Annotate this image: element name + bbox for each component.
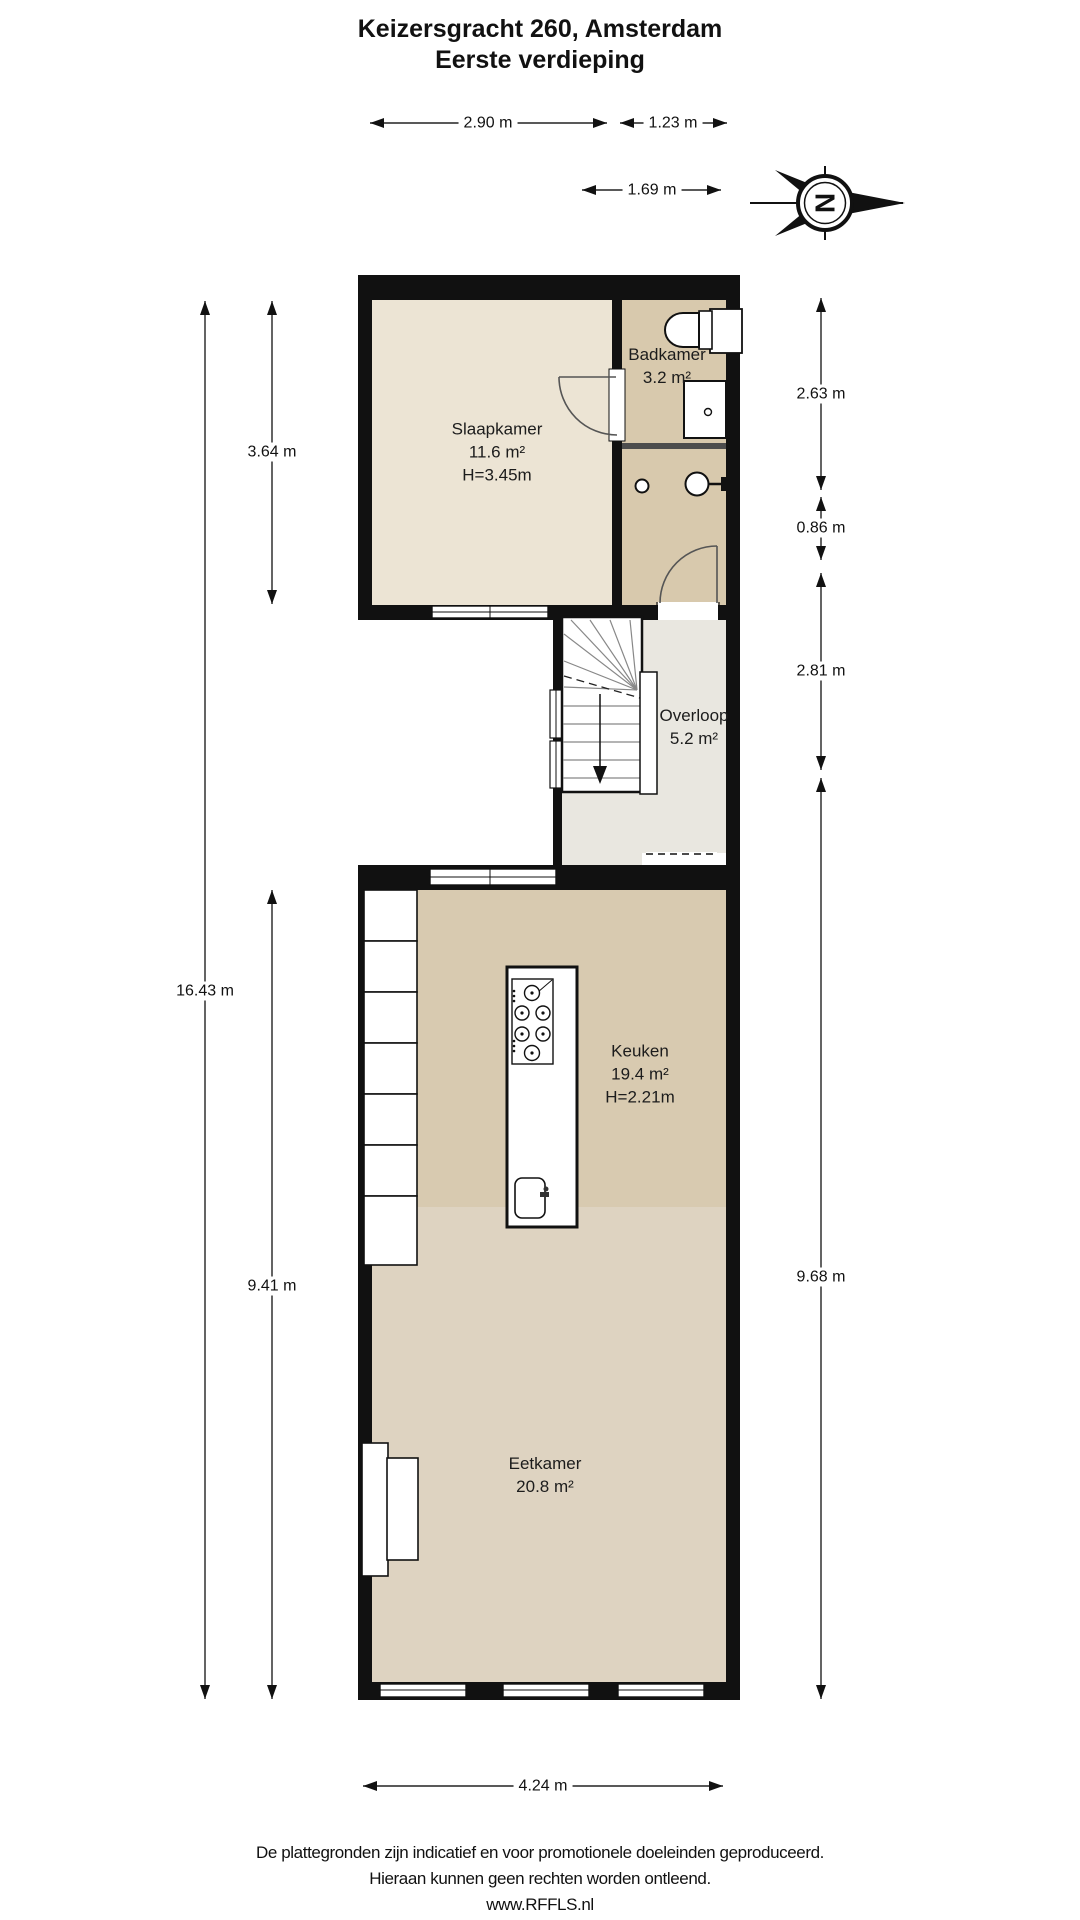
dim-right-lower: 9.68 m <box>792 1268 851 1287</box>
dim-right-bath: 2.63 m <box>792 385 851 404</box>
page-title: Keizersgracht 260, Amsterdam Eerste verd… <box>0 14 1080 76</box>
room-label-eetkamer: Eetkamer 20.8 m² <box>509 1452 582 1498</box>
room-area: 3.2 m² <box>628 366 705 389</box>
wall-niche <box>710 309 742 353</box>
north-arrow-icon: N <box>750 166 905 240</box>
dim-left-lower: 9.41 m <box>243 1277 302 1296</box>
dim-top-main: 2.90 m <box>459 114 518 133</box>
kitchen-cabinets <box>364 890 417 1265</box>
room-label-badkamer: Badkamer 3.2 m² <box>628 343 705 389</box>
room-name: Overloop <box>660 704 729 727</box>
floorplan-svg: N <box>0 0 1080 1920</box>
room-fill-eetkamer <box>372 1207 726 1682</box>
title-floor: Eerste verdieping <box>0 45 1080 76</box>
room-name: Badkamer <box>628 343 705 366</box>
room-name: Slaapkamer <box>452 418 543 441</box>
dim-right-landing: 2.81 m <box>792 662 851 681</box>
room-label-keuken: Keuken 19.4 m² H=2.21m <box>605 1040 674 1109</box>
shower-icon <box>684 381 726 438</box>
dim-right-gap: 0.86 m <box>792 519 851 538</box>
room-name: Keuken <box>605 1040 674 1063</box>
room-fill-washroom <box>622 449 726 605</box>
compass-letter: N <box>810 193 841 213</box>
interior-partition <box>622 443 726 449</box>
floorplan-page: N Keizersgracht 260, Amsterdam Eerste ve… <box>0 0 1080 1920</box>
dim-left-bedroom: 3.64 m <box>243 443 302 462</box>
title-address: Keizersgracht 260, Amsterdam <box>0 14 1080 45</box>
middle-section <box>550 617 740 889</box>
sink-icon <box>515 1178 549 1218</box>
dim-top-bath: 1.23 m <box>644 114 703 133</box>
room-height: H=3.45m <box>452 464 543 487</box>
dim-top-landing: 1.69 m <box>623 181 682 200</box>
room-height: H=2.21m <box>605 1086 674 1109</box>
disclaimer-line-1: De plattegronden zijn indicatief en voor… <box>0 1840 1080 1866</box>
fireplace <box>362 1443 418 1576</box>
banister <box>640 672 657 794</box>
room-label-overloop: Overloop 5.2 m² <box>660 704 729 750</box>
dim-left-total: 16.43 m <box>171 982 239 1001</box>
stairs <box>562 617 657 794</box>
kitchen-island <box>507 967 577 1227</box>
window <box>432 606 548 618</box>
lower-block <box>358 865 740 1700</box>
room-area: 11.6 m² <box>452 441 543 464</box>
top-block <box>358 275 742 621</box>
room-area: 20.8 m² <box>509 1475 582 1498</box>
room-label-slaapkamer: Slaapkamer 11.6 m² H=3.45m <box>452 418 543 487</box>
room-area: 5.2 m² <box>660 727 729 750</box>
stove-icon <box>512 979 553 1064</box>
room-area: 19.4 m² <box>605 1063 674 1086</box>
window <box>430 869 556 885</box>
room-name: Eetkamer <box>509 1452 582 1475</box>
disclaimer-line-2: Hieraan kunnen geen rechten worden ontle… <box>0 1866 1080 1892</box>
dim-bottom-width: 4.24 m <box>514 1777 573 1796</box>
room-fill-overloop-under-stairs <box>562 792 642 867</box>
disclaimer: De plattegronden zijn indicatief en voor… <box>0 1840 1080 1918</box>
window <box>380 1684 704 1697</box>
disclaimer-website: www.RFFLS.nl <box>0 1892 1080 1918</box>
